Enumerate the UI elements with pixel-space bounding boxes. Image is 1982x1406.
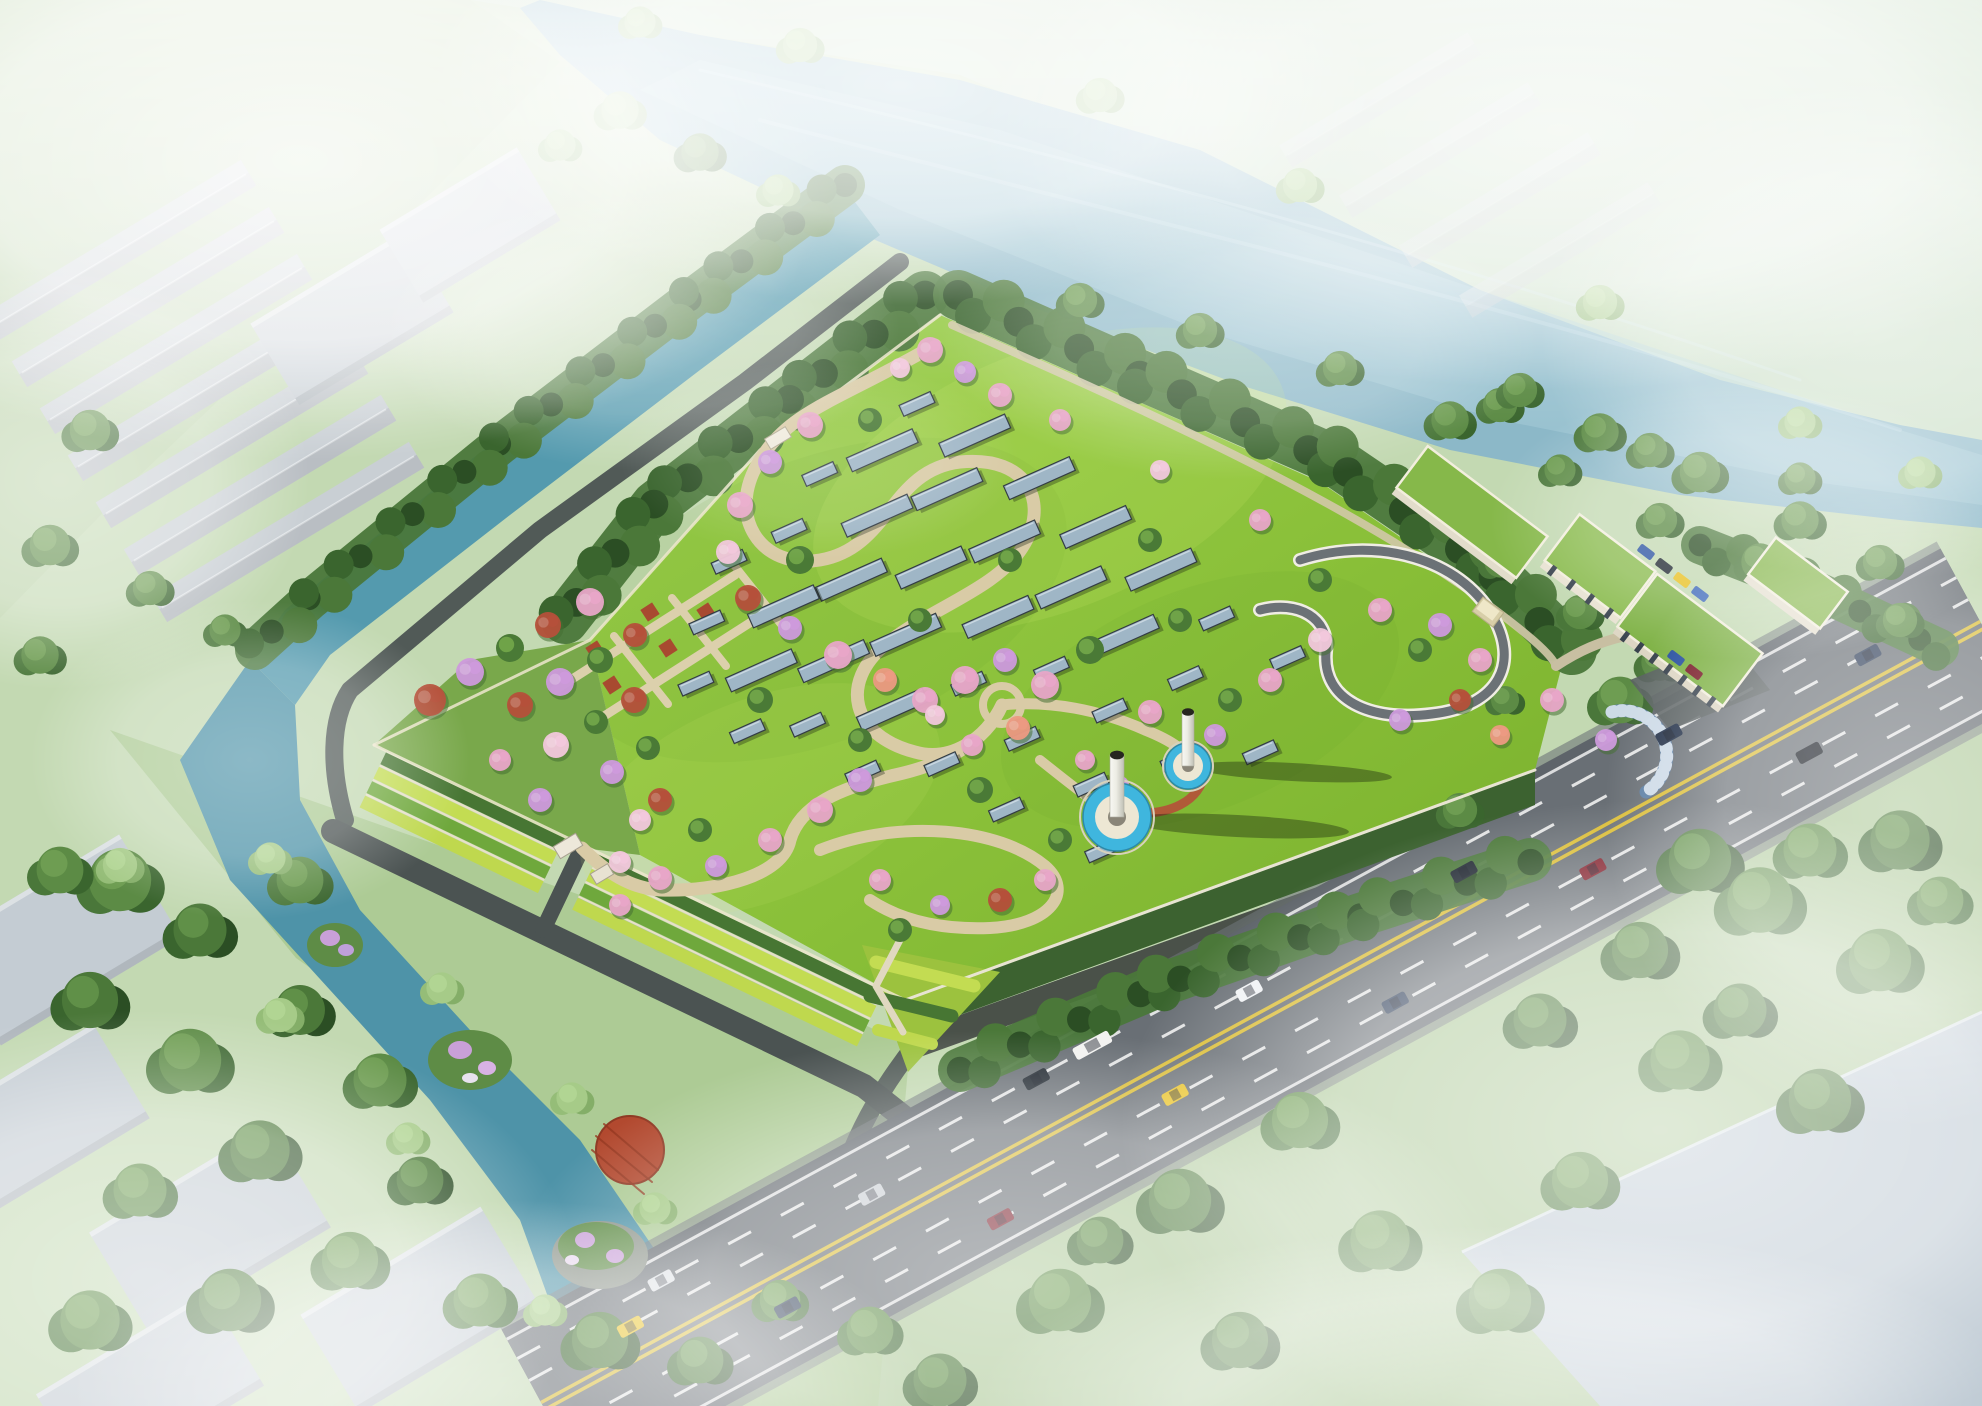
fog-patch <box>30 600 470 920</box>
tree <box>427 465 457 495</box>
stack-cylinder <box>1182 712 1194 766</box>
shrub-cluster <box>908 608 932 632</box>
shrub-cluster <box>1076 636 1104 664</box>
shrub-cluster <box>1308 568 1332 592</box>
island <box>462 1073 478 1083</box>
shrub-cluster <box>848 728 872 752</box>
shrub-cluster <box>584 710 608 734</box>
shrub-cluster <box>496 634 524 662</box>
shrub-cluster <box>1138 528 1162 552</box>
tree <box>376 507 406 537</box>
stack-cylinder <box>1110 755 1124 817</box>
top-haze <box>0 0 1982 430</box>
tree <box>368 534 404 570</box>
shrub-cluster <box>998 548 1022 572</box>
island <box>307 923 363 967</box>
island <box>338 944 354 956</box>
shrub-cluster <box>688 818 712 842</box>
shrub-cluster <box>1218 688 1242 712</box>
rendering-canvas <box>0 0 1982 1406</box>
island <box>478 1061 496 1075</box>
shrub-cluster <box>636 736 660 760</box>
shrub-cluster <box>967 777 993 803</box>
stack-opening <box>1182 708 1194 716</box>
plaza-center <box>998 701 1006 709</box>
tree <box>316 577 352 613</box>
shrub-cluster <box>1048 828 1072 852</box>
shrub-cluster <box>1168 608 1192 632</box>
shrub-cluster <box>1408 638 1432 662</box>
rendering-stage <box>0 0 1982 1406</box>
tree <box>420 492 456 528</box>
island <box>448 1041 472 1059</box>
shrub-cluster <box>587 647 613 673</box>
tree <box>472 450 508 486</box>
tree <box>324 550 354 580</box>
stack-opening <box>1110 751 1124 760</box>
shrub-cluster <box>747 687 773 713</box>
shrub-cluster <box>888 918 912 942</box>
island <box>320 930 340 946</box>
